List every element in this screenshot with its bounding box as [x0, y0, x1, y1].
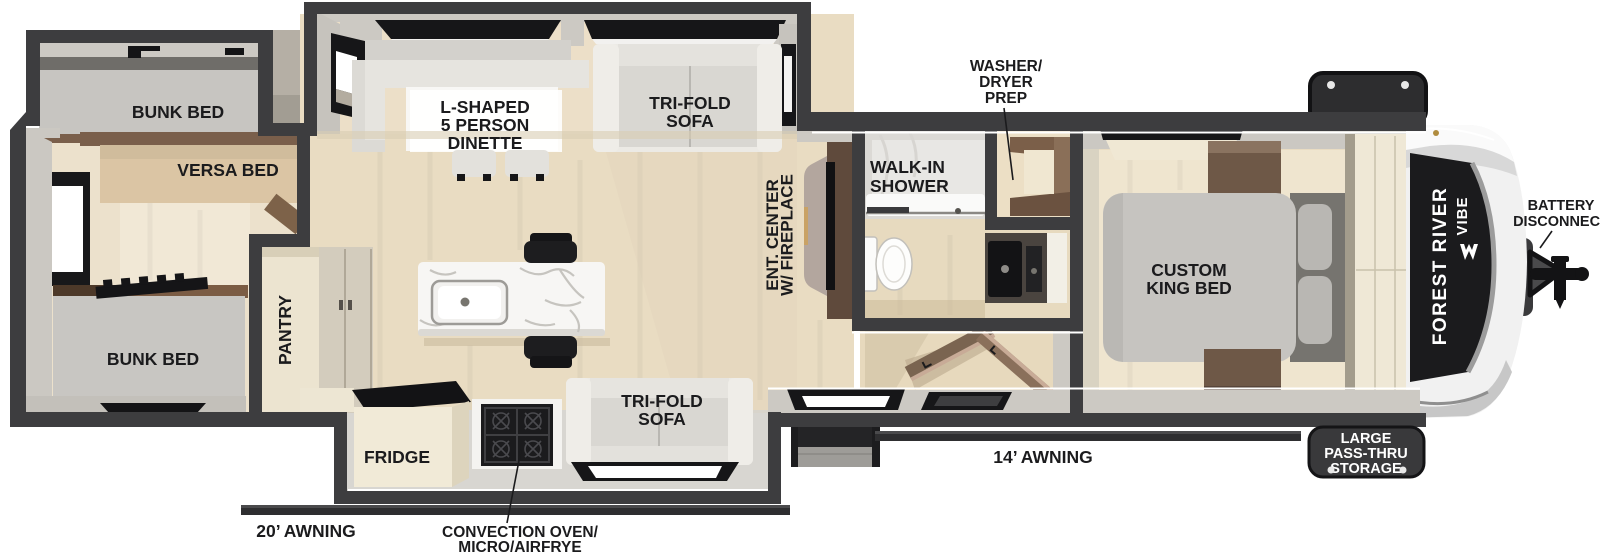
svg-text:BUNK BED: BUNK BED [132, 102, 224, 122]
svg-text:BATTERY: BATTERY [1528, 198, 1595, 214]
svg-text:SOFA: SOFA [666, 111, 714, 131]
svg-text:BUNK BED: BUNK BED [107, 349, 199, 369]
svg-text:PASS-THRU: PASS-THRU [1324, 446, 1408, 462]
svg-text:DRYER: DRYER [979, 74, 1033, 91]
svg-text:DISCONNECT: DISCONNECT [1513, 214, 1600, 230]
svg-text:VERSA BED: VERSA BED [177, 160, 278, 180]
svg-text:FOREST RIVER: FOREST RIVER [1430, 187, 1451, 345]
svg-text:KING BED: KING BED [1146, 278, 1232, 298]
svg-text:FRIDGE: FRIDGE [364, 447, 430, 467]
svg-text:PANTRY: PANTRY [275, 295, 295, 365]
svg-text:LARGE: LARGE [1341, 431, 1392, 447]
svg-text:W/ FIREPLACE: W/ FIREPLACE [778, 174, 797, 296]
svg-text:STORAGE: STORAGE [1330, 461, 1402, 477]
svg-text:20’ AWNING: 20’ AWNING [256, 521, 356, 541]
svg-text:L-SHAPED: L-SHAPED [440, 97, 529, 117]
svg-text:SOFA: SOFA [638, 409, 686, 429]
svg-text:PREP: PREP [985, 90, 1027, 107]
svg-text:CUSTOM: CUSTOM [1151, 260, 1227, 280]
svg-text:MICRO/AIRFRYE: MICRO/AIRFRYE [458, 539, 581, 552]
svg-text:DINETTE: DINETTE [448, 133, 523, 153]
svg-text:TRI-FOLD: TRI-FOLD [621, 391, 703, 411]
svg-text:WALK-IN: WALK-IN [870, 157, 945, 177]
svg-text:TRI-FOLD: TRI-FOLD [649, 93, 731, 113]
svg-text:WASHER/: WASHER/ [970, 58, 1043, 75]
svg-text:VIBE: VIBE [1454, 196, 1471, 235]
svg-text:14’ AWNING: 14’ AWNING [993, 447, 1093, 467]
svg-text:5 PERSON: 5 PERSON [441, 115, 530, 135]
svg-text:SHOWER: SHOWER [870, 176, 949, 196]
